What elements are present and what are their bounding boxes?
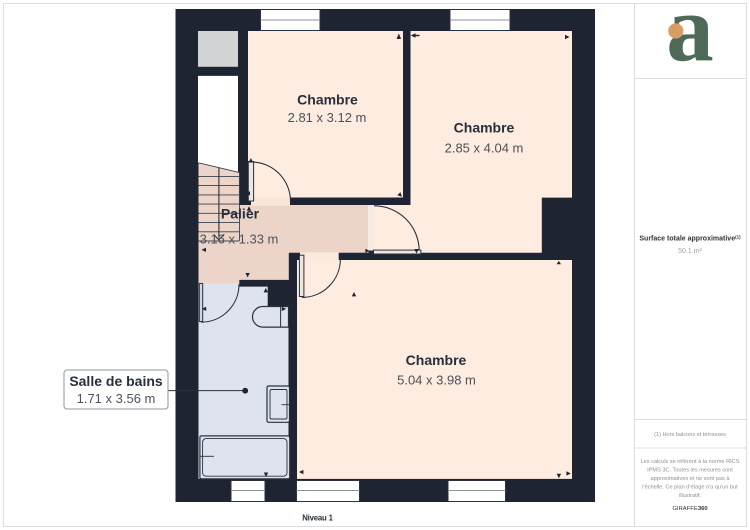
svg-text:illustratif.: illustratif. <box>679 493 702 499</box>
svg-text:GIRAFFE360: GIRAFFE360 <box>672 506 708 512</box>
svg-text:approximatives et ne sont pas: approximatives et ne sont pas à <box>651 476 731 482</box>
svg-text:50.1 m²: 50.1 m² <box>678 248 702 255</box>
svg-text:Niveau 1: Niveau 1 <box>302 514 333 523</box>
svg-text:(1) Hors balcons et terrasses: (1) Hors balcons et terrasses <box>654 432 726 438</box>
svg-text:Chambre: Chambre <box>406 352 467 368</box>
svg-text:Surface totale approximative(1: Surface totale approximative(1) <box>639 235 741 243</box>
svg-text:5.04 x 3.98 m: 5.04 x 3.98 m <box>397 373 476 388</box>
svg-text:Les calculs se réfèrent à la n: Les calculs se réfèrent à la norme RICS <box>641 459 740 465</box>
svg-text:Chambre: Chambre <box>454 120 515 136</box>
svg-text:2.85 x 4.04 m: 2.85 x 4.04 m <box>445 141 524 156</box>
svg-text:l'échelle. Ce plan d'étage n'a: l'échelle. Ce plan d'étage n'a qu'un but <box>642 485 738 491</box>
svg-text:3.16 x 1.33 m: 3.16 x 1.33 m <box>200 232 279 247</box>
svg-text:IPMS 3C. Toutes les mesures so: IPMS 3C. Toutes les mesures sont <box>647 468 733 474</box>
svg-text:2.81 x 3.12 m: 2.81 x 3.12 m <box>288 110 367 125</box>
svg-text:Chambre: Chambre <box>297 92 358 108</box>
svg-text:a: a <box>666 0 714 82</box>
svg-text:1.71 x 3.56 m: 1.71 x 3.56 m <box>77 391 156 406</box>
svg-text:Salle de bains: Salle de bains <box>69 373 163 389</box>
svg-text:Palier: Palier <box>221 206 260 222</box>
